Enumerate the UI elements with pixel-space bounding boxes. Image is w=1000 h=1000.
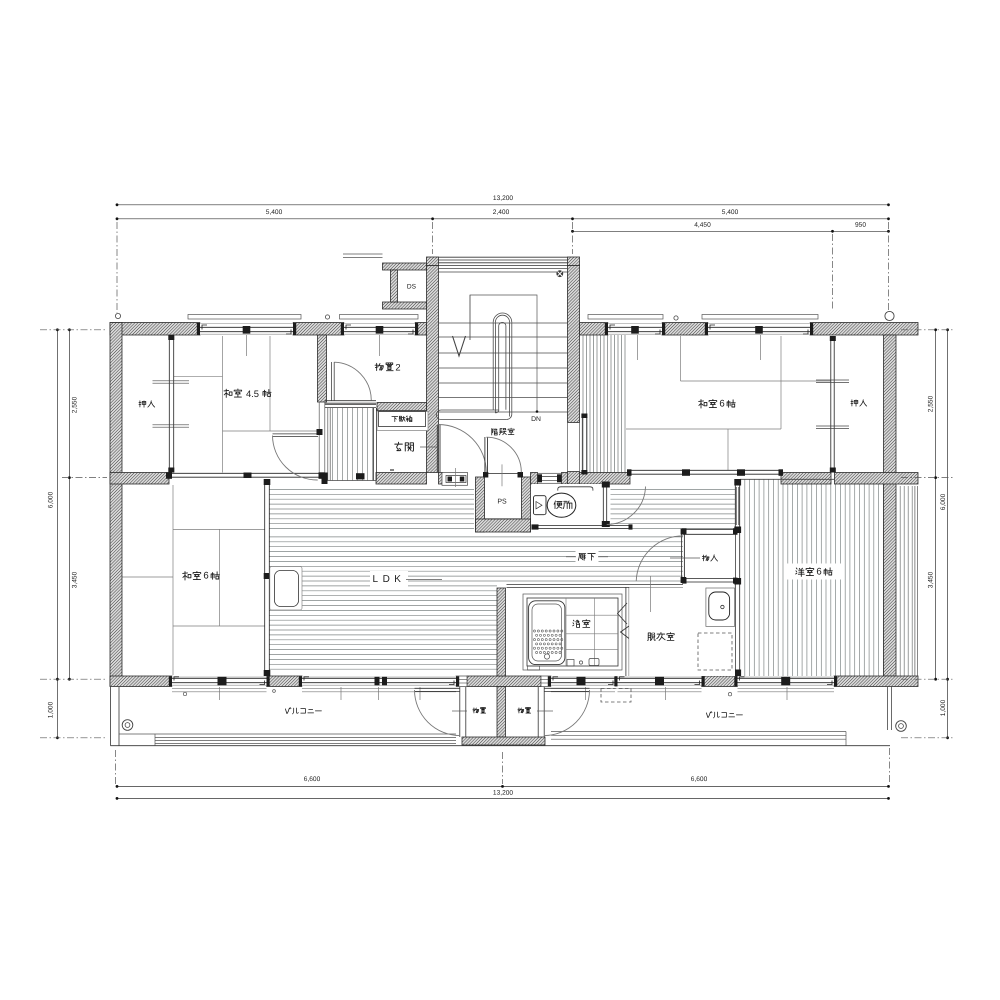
svg-text:4.5: 4.5 <box>246 388 259 399</box>
svg-text:2: 2 <box>395 361 400 372</box>
svg-text:6: 6 <box>816 566 821 577</box>
svg-text:5,400: 5,400 <box>266 209 283 216</box>
svg-text:3,450: 3,450 <box>928 571 935 588</box>
svg-text:DS: DS <box>407 283 417 290</box>
svg-text:2,550: 2,550 <box>71 396 78 413</box>
svg-text:950: 950 <box>855 222 866 229</box>
svg-text:6,000: 6,000 <box>48 491 55 508</box>
svg-text:4,450: 4,450 <box>694 222 711 229</box>
svg-text:1,000: 1,000 <box>940 699 947 716</box>
svg-text:DN: DN <box>531 416 541 423</box>
svg-text:6,600: 6,600 <box>304 776 321 783</box>
svg-text:PS: PS <box>497 498 507 505</box>
svg-text:2,550: 2,550 <box>928 395 935 412</box>
svg-text:6,600: 6,600 <box>691 776 708 783</box>
svg-text:LDK: LDK <box>373 574 406 585</box>
svg-text:6: 6 <box>719 398 724 409</box>
svg-text:5,400: 5,400 <box>722 209 739 216</box>
svg-text:13,200: 13,200 <box>493 790 514 797</box>
svg-text:1,000: 1,000 <box>48 701 55 718</box>
svg-text:3,450: 3,450 <box>71 571 78 588</box>
svg-text:6,000: 6,000 <box>940 493 947 510</box>
svg-text:13,200: 13,200 <box>493 195 514 202</box>
svg-text:6: 6 <box>203 570 208 581</box>
svg-text:2,400: 2,400 <box>493 209 510 216</box>
